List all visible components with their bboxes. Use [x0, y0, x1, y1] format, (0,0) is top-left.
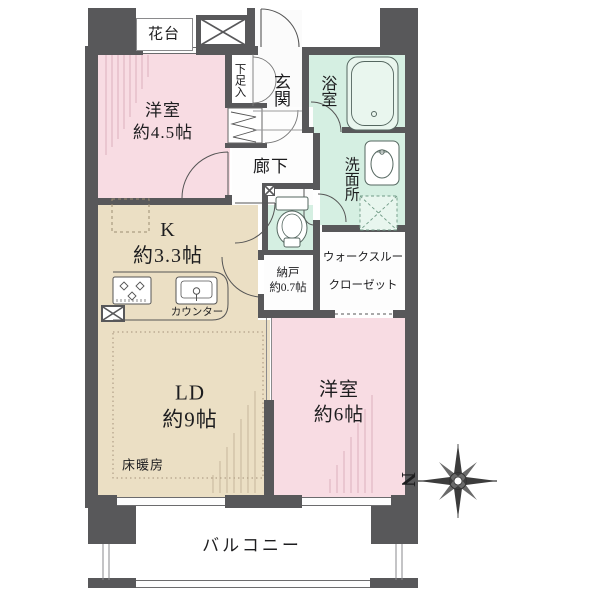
closet-top-wall — [225, 103, 267, 108]
bedroom45-label: 洋室 約4.5帖 — [133, 100, 193, 144]
washroom-wtc-wall — [322, 225, 408, 232]
balcony-rail-cap-right — [370, 578, 418, 588]
row-bottom-wall-a — [258, 310, 335, 318]
pipe-shaft-box — [196, 15, 250, 49]
compass-north-label: N — [395, 472, 421, 487]
wtc-line1: ウォークスルー — [323, 244, 403, 272]
storage-left-wall-a — [258, 250, 264, 260]
flower-stand-label: 花台 — [148, 25, 180, 45]
living-bedroom6-wall — [264, 400, 274, 497]
balcony-label: バルコニー — [202, 535, 302, 557]
bedroom6-label: 洋室 約6帖 — [314, 378, 365, 427]
kitchen-size: 約3.3帖 — [133, 243, 203, 269]
wtc-label: ウォークスルー クローゼット — [323, 244, 403, 299]
entrance-bath-wall — [302, 47, 309, 133]
top-wall-c — [302, 47, 405, 55]
balcony-rail-front — [136, 580, 370, 588]
washroom-left-wall-b — [313, 220, 320, 250]
storage-label: 納戸 約0.7帖 — [269, 266, 306, 296]
bedroom6-name: 洋室 — [314, 378, 365, 403]
kitchen-counter-label: カウンター — [171, 306, 224, 320]
living-name: LD — [162, 380, 218, 407]
right-exterior-wall — [405, 46, 418, 508]
compass-icon — [418, 444, 497, 518]
floor-plan: 花台 洋室 約4.5帖 下足入 玄関 浴室 廊下 洗面所 K 約3.3帖 カウン… — [0, 0, 600, 600]
toilet-x-mark — [264, 185, 275, 196]
storage-name: 納戸 — [269, 266, 306, 281]
washroom-floor — [320, 133, 405, 225]
floor-heating-label: 床暖房 — [122, 458, 164, 475]
washroom-left-wall-a — [313, 133, 320, 190]
left-exterior-wall — [85, 46, 98, 508]
kitchen-shaft-box — [101, 305, 125, 322]
row-bottom-wall-b — [393, 310, 418, 318]
bottom-wall-b — [225, 495, 302, 508]
storage-size: 約0.7帖 — [269, 281, 306, 296]
entrance-label: 玄関 — [269, 73, 291, 107]
kitchen-name: K — [133, 217, 203, 243]
bedroom45-size: 約4.5帖 — [133, 122, 193, 144]
shoe-box-label: 下足入 — [232, 63, 247, 98]
corridor-label: 廊下 — [253, 156, 289, 178]
bath-washroom-wall-b — [342, 127, 408, 133]
bedroom6-balcony-window — [302, 497, 391, 506]
balcony-rail-cap-left — [88, 578, 136, 588]
bedroom6-size: 約6帖 — [314, 403, 365, 428]
washroom-label: 洗面所 — [340, 157, 360, 202]
living-balcony-window — [117, 497, 225, 506]
closet-bottom-wall — [225, 143, 267, 148]
toilet-bottom-wall — [262, 250, 320, 255]
living-label: LD 約9帖 — [162, 380, 218, 435]
top-wall-a — [85, 46, 143, 55]
bedroom45-door-nub — [225, 195, 232, 205]
living-size: 約9帖 — [162, 407, 218, 434]
bedroom45-kitchen-wall — [85, 198, 232, 205]
storage-right-wall — [313, 250, 320, 318]
bath-label: 浴室 — [316, 75, 337, 107]
bedroom45-name: 洋室 — [133, 100, 193, 122]
kitchen-label: K 約3.3帖 — [133, 217, 203, 269]
wtc-line2: クローゼット — [323, 272, 403, 300]
